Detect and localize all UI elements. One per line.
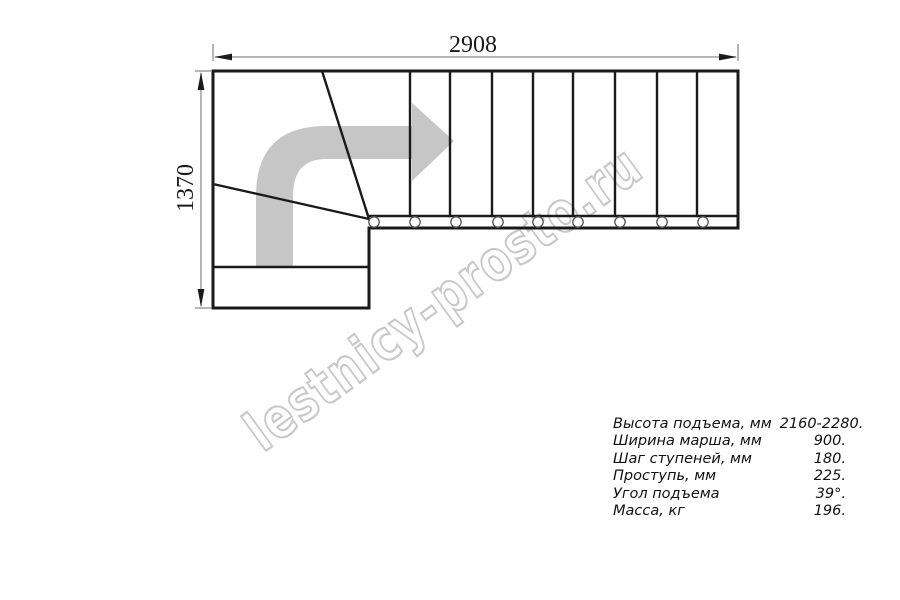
- spec-row-flight-width: Ширина марша, мм 900.: [613, 433, 846, 450]
- spec-row-mass: Масса, кг 196.: [613, 503, 846, 520]
- dim-arrow-right-icon: [719, 54, 737, 61]
- spec-table: Высота подъема, мм 2160-2280. Ширина мар…: [613, 416, 846, 520]
- spec-label: Высота подъема, мм: [613, 416, 772, 433]
- spec-label: Масса, кг: [613, 503, 685, 520]
- spec-label: Угол подъема: [613, 486, 720, 503]
- spec-value: 196.: [814, 503, 846, 520]
- staircase-plan-canvas: lestnicy-prosto.ru: [0, 0, 900, 600]
- dim-arrow-up-icon: [198, 72, 205, 90]
- spec-value: 900.: [814, 433, 846, 450]
- spec-row-step-pitch: Шаг ступеней, мм 180.: [613, 451, 846, 468]
- spec-value: 39°.: [816, 486, 846, 503]
- spec-row-tread-depth: Проступь, мм 225.: [613, 468, 846, 485]
- dim-arrow-left-icon: [214, 54, 232, 61]
- spec-label: Ширина марша, мм: [613, 433, 762, 450]
- spec-label: Проступь, мм: [613, 468, 716, 485]
- spec-row-climb-angle: Угол подъема 39°.: [613, 486, 846, 503]
- dimension-left: 1370: [173, 71, 212, 308]
- direction-arrow-icon: [256, 103, 454, 267]
- spec-value: 180.: [814, 451, 846, 468]
- spec-label: Шаг ступеней, мм: [613, 451, 752, 468]
- dimension-top: 2908: [213, 32, 738, 61]
- height-dimension-label: 1370: [173, 164, 199, 212]
- width-dimension-label: 2908: [449, 32, 497, 58]
- spec-value: 2160-2280.: [780, 416, 864, 433]
- baluster-circles: [369, 217, 708, 227]
- watermark-text: lestnicy-prosto.ru: [233, 133, 655, 464]
- dim-arrow-down-icon: [198, 289, 205, 307]
- spec-row-rise-height: Высота подъема, мм 2160-2280.: [613, 416, 846, 433]
- spec-value: 225.: [814, 468, 846, 485]
